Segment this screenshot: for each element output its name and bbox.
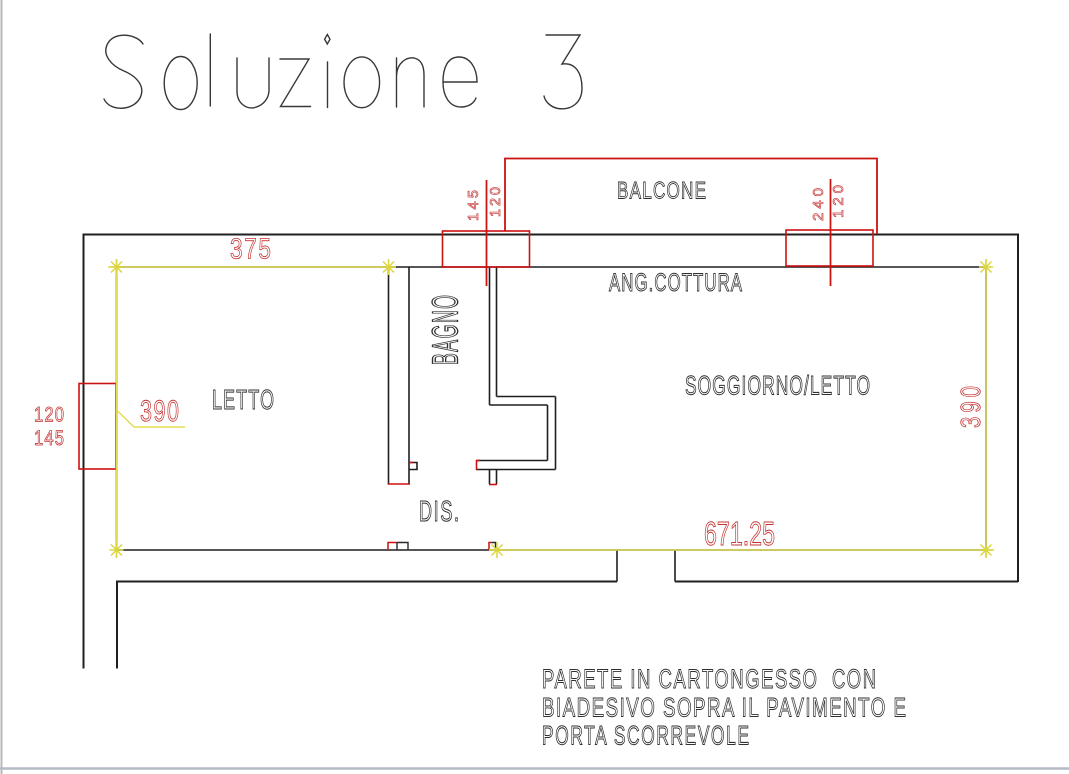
svg-text:390: 390 <box>140 396 179 428</box>
svg-text:BALCONE: BALCONE <box>617 178 706 204</box>
svg-text:ANG.COTTURA: ANG.COTTURA <box>609 270 743 297</box>
svg-text:145: 145 <box>34 427 64 450</box>
svg-text:120: 120 <box>488 187 504 217</box>
svg-text:BIADESIVO SOPRA IL PAVIMENTO E: BIADESIVO SOPRA IL PAVIMENTO E <box>542 692 906 722</box>
svg-text:LETTO: LETTO <box>212 384 274 415</box>
svg-text:375: 375 <box>230 234 271 265</box>
svg-text:PARETE IN CARTONGESSO CON: PARETE IN CARTONGESSO CON <box>542 664 876 694</box>
svg-text:671.25: 671.25 <box>704 516 775 553</box>
svg-text:SOGGIORNO/LETTO: SOGGIORNO/LETTO <box>685 371 870 401</box>
svg-text:PORTA SCORREVOLE: PORTA SCORREVOLE <box>542 721 749 751</box>
svg-text:120: 120 <box>34 404 64 427</box>
svg-text:BAGNO: BAGNO <box>426 295 467 365</box>
svg-text:145: 145 <box>466 190 482 221</box>
svg-text:390: 390 <box>956 386 987 428</box>
svg-text:120: 120 <box>830 185 847 218</box>
svg-text:240: 240 <box>810 188 827 221</box>
